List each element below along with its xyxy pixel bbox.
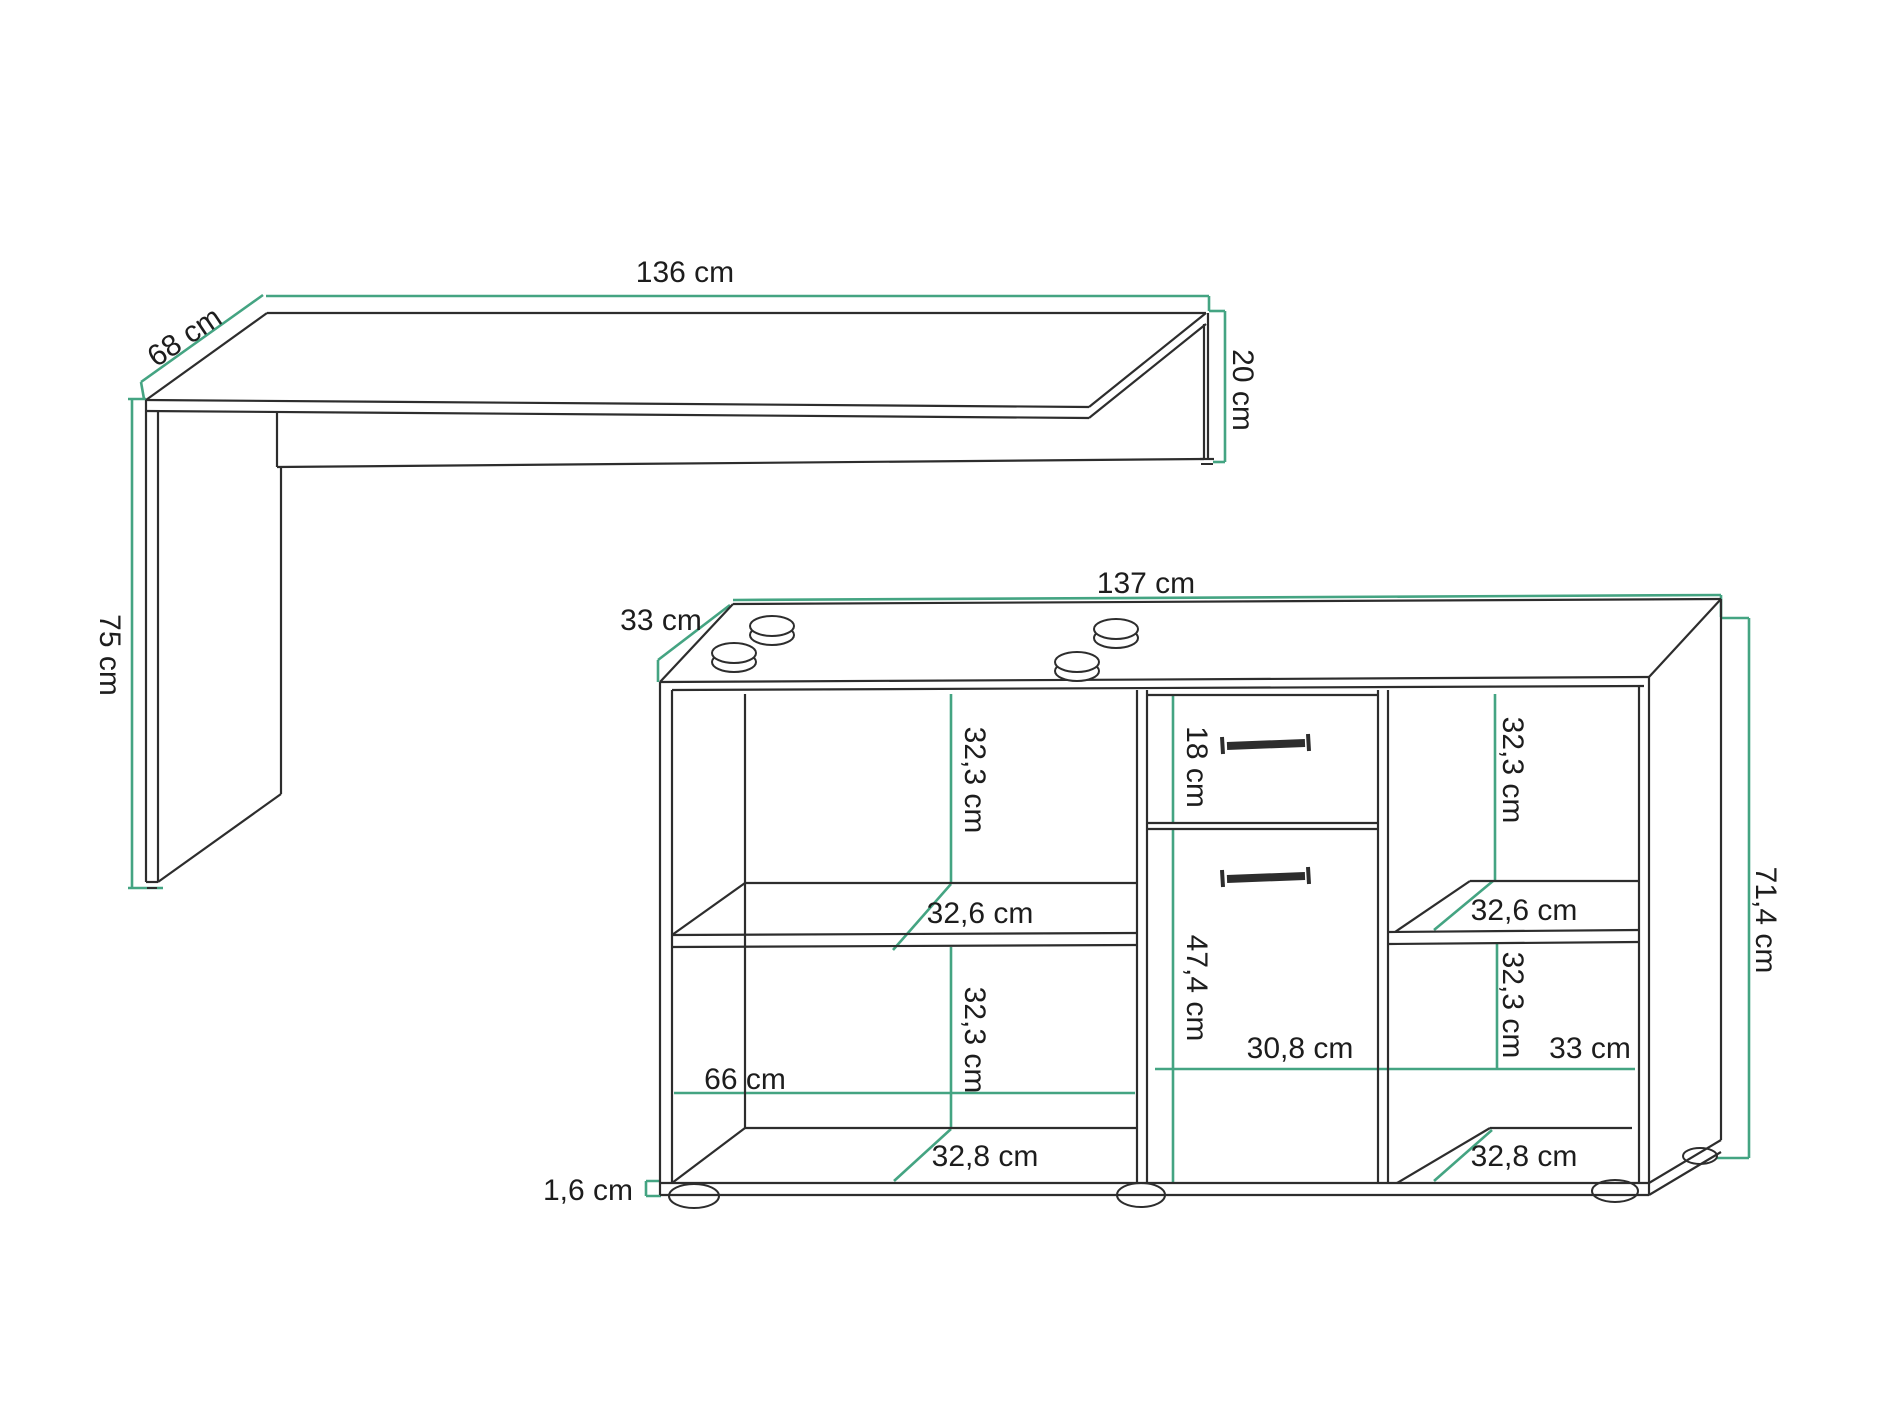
- right-floor-depth-label: 32,8 cm: [1471, 1140, 1578, 1173]
- cabinet-width-label: 137 cm: [1097, 567, 1195, 600]
- left-shelf-depth-label: 32,6 cm: [927, 897, 1034, 930]
- desk-dimension-lines: [128, 295, 1225, 888]
- furniture-dimension-diagram: 136 cm 68 cm 75 cm 20 cm: [0, 0, 1881, 1410]
- left-bottom-compartment-height-label: 32,3 cm: [958, 987, 991, 1094]
- connector-puck: [750, 616, 794, 645]
- connector-puck: [1055, 652, 1099, 681]
- diagram-canvas: 136 cm 68 cm 75 cm 20 cm: [0, 0, 1881, 1410]
- door-handle: [1222, 867, 1309, 887]
- desk-side-panel-height-label: 20 cm: [1226, 349, 1259, 431]
- cabinet-drawing: 137 cm 33 cm 71,4 cm 1,6 cm 32,3 cm 32,6…: [543, 567, 1782, 1208]
- middle-inner-width-label: 30,8 cm: [1247, 1032, 1354, 1065]
- right-bottom-compartment-height-label: 32,3 cm: [1496, 952, 1529, 1059]
- desk-height-label: 75 cm: [93, 614, 126, 696]
- cabinet-top-connectors: [712, 616, 1138, 681]
- right-shelf-depth-label: 32,6 cm: [1471, 894, 1578, 927]
- desk-drawing: 136 cm 68 cm 75 cm 20 cm: [93, 256, 1259, 888]
- cabinet-height-label: 71,4 cm: [1749, 867, 1782, 974]
- left-floor-depth-label: 32,8 cm: [932, 1140, 1039, 1173]
- drawer-handle: [1222, 734, 1309, 754]
- drawer-height-label: 18 cm: [1180, 726, 1213, 808]
- left-inner-width-label: 66 cm: [704, 1063, 786, 1096]
- desk-width-label: 136 cm: [636, 256, 734, 289]
- desk-depth-label: 68 cm: [142, 301, 228, 374]
- right-inner-width-label: 33 cm: [1549, 1032, 1631, 1065]
- door-height-label: 47,4 cm: [1180, 935, 1213, 1042]
- connector-puck: [1094, 619, 1138, 648]
- right-top-compartment-height-label: 32,3 cm: [1496, 717, 1529, 824]
- cabinet-depth-label: 33 cm: [620, 604, 702, 637]
- cabinet-base-thickness-label: 1,6 cm: [543, 1174, 633, 1207]
- left-top-compartment-height-label: 32,3 cm: [958, 727, 991, 834]
- connector-puck: [712, 643, 756, 672]
- desk-outline: [146, 313, 1214, 888]
